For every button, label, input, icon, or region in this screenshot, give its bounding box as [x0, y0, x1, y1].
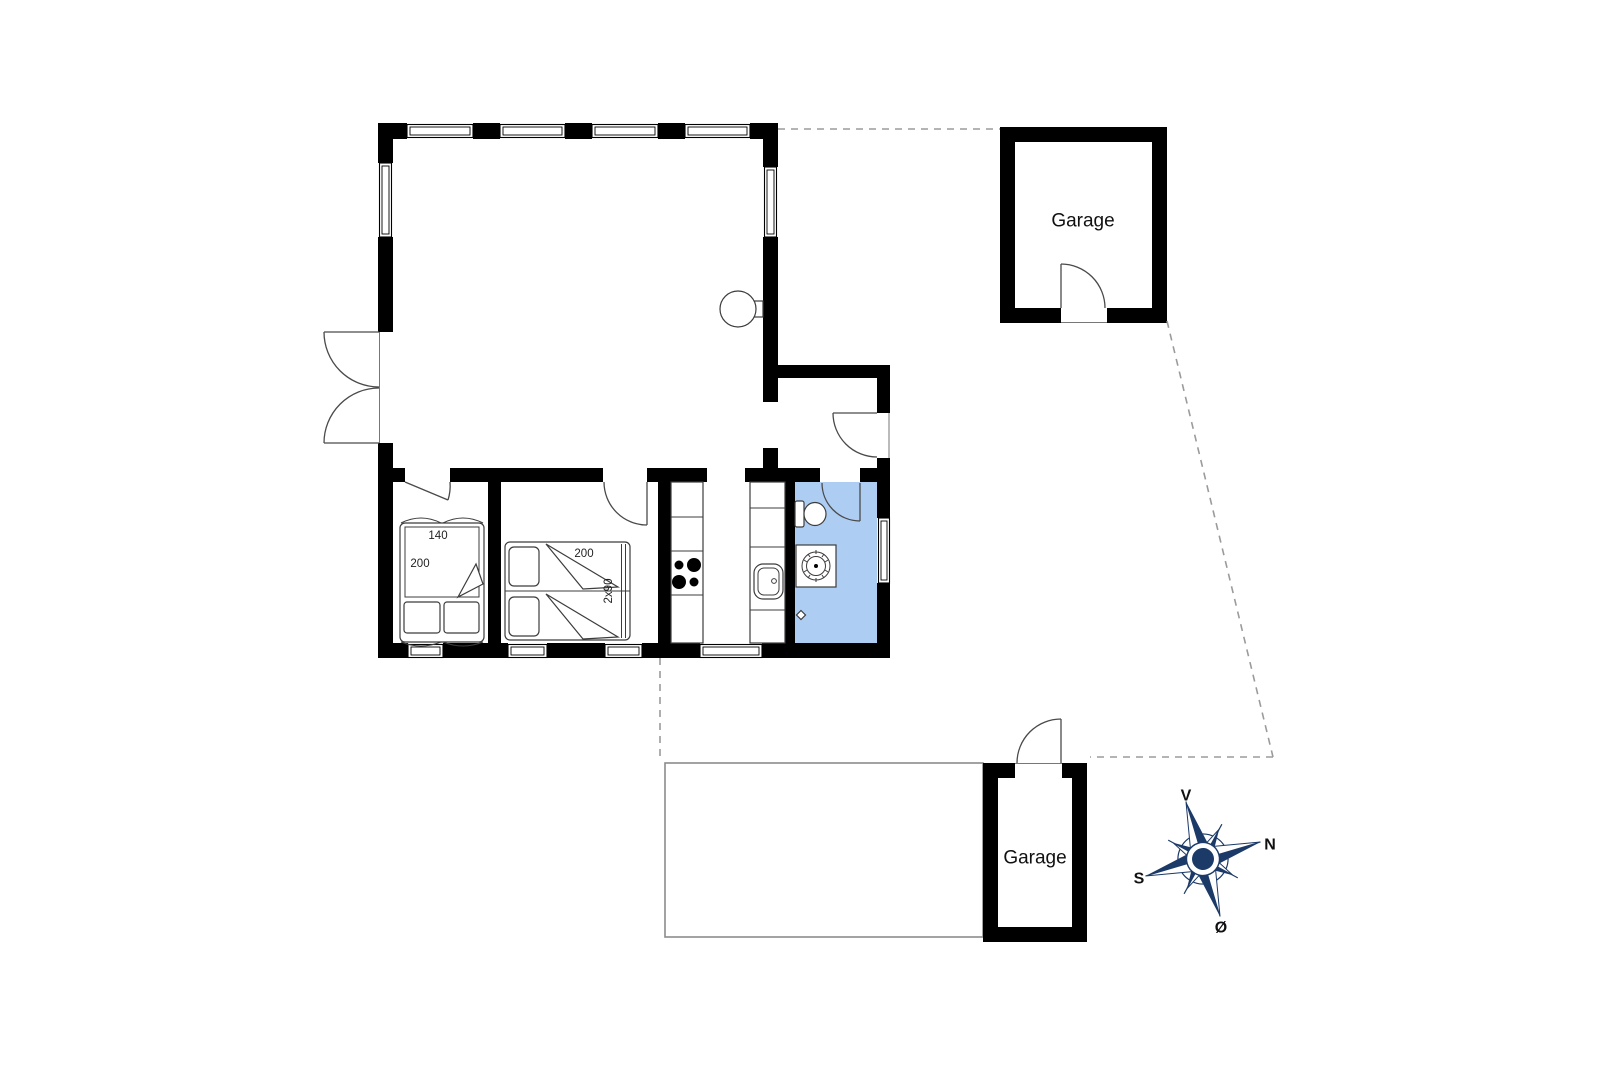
window	[879, 518, 890, 583]
wall-segment	[1072, 763, 1087, 942]
wall-segment	[983, 763, 1015, 778]
wall-segment	[642, 643, 700, 658]
window	[380, 163, 392, 237]
wall-segment	[450, 468, 603, 482]
wall-segment	[1000, 127, 1167, 142]
garage-top: Garage	[1000, 127, 1167, 323]
wall-segment	[1062, 763, 1087, 778]
window	[508, 645, 547, 658]
garage-bottom-door	[1015, 719, 1062, 764]
shower-icon	[796, 545, 836, 587]
wall-segment	[647, 468, 707, 482]
property-line	[660, 129, 1273, 762]
wall-segment	[378, 123, 393, 163]
floor-plan-page: 140 200 200 2x90	[0, 0, 1600, 1066]
wall-segment	[565, 123, 592, 139]
window	[408, 645, 443, 658]
garage-top-label: Garage	[1051, 211, 1114, 232]
window	[700, 645, 762, 658]
carport	[665, 763, 983, 937]
compass-west-label: V	[1181, 788, 1192, 805]
garage-bottom-label: Garage	[1003, 848, 1066, 869]
wall-segment	[1107, 308, 1167, 323]
window	[765, 167, 777, 237]
bedroom2-door	[604, 482, 647, 525]
sink-icon	[754, 564, 783, 599]
entry-door	[833, 413, 889, 458]
window	[685, 125, 750, 138]
bed1-width-label: 140	[428, 530, 447, 542]
wall-segment	[473, 123, 500, 139]
window	[592, 125, 658, 138]
wall-segment	[762, 643, 890, 658]
wall-segment	[378, 468, 405, 482]
wall-segment	[785, 482, 795, 643]
wall-segment	[488, 482, 501, 643]
bed2-size-label: 2x90	[603, 579, 615, 604]
kitchen	[671, 482, 785, 643]
garage-top-door	[1061, 264, 1107, 323]
bed1-length-label: 200	[410, 558, 429, 570]
kitchen-counter-left	[671, 482, 703, 643]
window	[500, 125, 565, 138]
wall-segment	[658, 123, 685, 139]
compass-north-label: N	[1264, 837, 1276, 854]
wall-segment	[763, 237, 778, 372]
wall-segment	[547, 643, 605, 658]
kitchen-counter-right	[750, 482, 785, 643]
wall-segment	[658, 482, 671, 643]
wall-segment	[983, 763, 998, 942]
bed2-length-label: 200	[574, 548, 593, 560]
compass-east-label: Ø	[1215, 920, 1227, 937]
wall-segment	[983, 927, 1087, 942]
wall-segment	[378, 237, 393, 332]
wall-segment	[763, 365, 890, 378]
house: 140 200 200 2x90	[324, 123, 890, 658]
wall-segment	[378, 643, 408, 658]
bedroom1-door	[405, 482, 450, 500]
bedroom-1: 140 200	[400, 518, 484, 646]
wall-segment	[763, 123, 778, 167]
floor-plan: 140 200 200 2x90	[0, 0, 1600, 1066]
compass-south-label: S	[1134, 871, 1145, 888]
window	[407, 125, 473, 138]
wall-segment	[763, 372, 778, 402]
french-doors	[324, 332, 380, 443]
window	[605, 645, 642, 658]
wall-segment	[1000, 308, 1061, 323]
wall-segment	[745, 468, 820, 482]
wall-segment	[1152, 127, 1167, 323]
compass-rose: V N S Ø	[1128, 784, 1277, 936]
bedroom-2: 200 2x90	[505, 542, 630, 640]
fireplace-icon	[720, 291, 763, 327]
garage-bottom: Garage	[983, 719, 1087, 942]
wall-segment	[1000, 127, 1015, 323]
wall-segment	[877, 458, 890, 518]
wall-segment	[877, 378, 890, 413]
toilet-icon	[795, 501, 826, 527]
property-line-segment	[1167, 321, 1273, 757]
wall-segment	[860, 468, 890, 482]
